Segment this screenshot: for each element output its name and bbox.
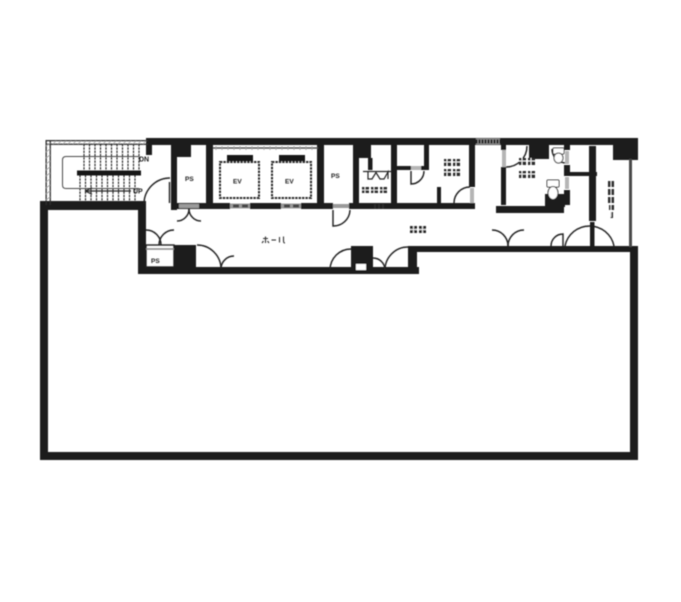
svg-text:EV: EV <box>285 179 294 186</box>
svg-text:PS: PS <box>151 258 160 265</box>
svg-text:PS: PS <box>185 176 194 183</box>
svg-text:PS: PS <box>331 173 340 180</box>
svg-text:UP: UP <box>133 189 143 196</box>
svg-text:DN: DN <box>139 157 149 164</box>
svg-text:EV: EV <box>233 179 242 186</box>
